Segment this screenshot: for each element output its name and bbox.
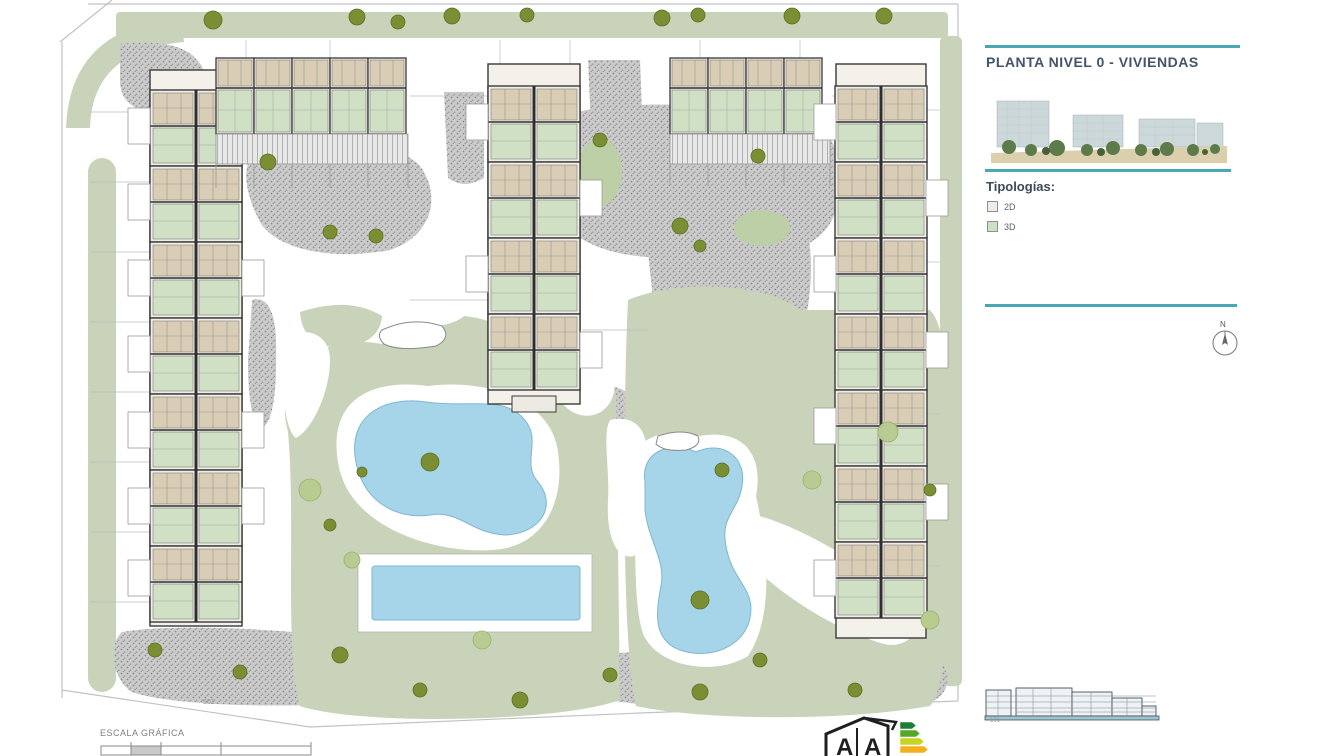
legend-item-2d: 2D <box>987 201 1016 212</box>
compass-icon: N <box>1205 315 1249 365</box>
energy-bars <box>900 722 928 753</box>
info-panel: PLANTA NIVEL 0 - VIVIENDAS <box>985 0 1245 756</box>
scale-bar <box>100 742 320 756</box>
scale-label: ESCALA GRÁFICA <box>100 728 185 738</box>
divider-middle <box>985 169 1231 172</box>
legend-label-3d: 3D <box>1004 222 1016 232</box>
sheet-note: 501 <box>203 699 215 706</box>
drawing-sheet: 501 ESCALA GRÁFICA A A <box>0 0 1319 756</box>
divider-top <box>985 45 1240 48</box>
legend-swatch-2d <box>987 201 998 212</box>
legend-item-3d: 3D <box>987 221 1016 232</box>
pool-lap <box>372 566 580 620</box>
legend-label-2d: 2D <box>1004 202 1016 212</box>
energy-letter-left: A <box>836 734 853 756</box>
legend-swatch-3d <box>987 221 998 232</box>
site-plan: 501 <box>0 0 970 756</box>
divider-bottom <box>985 304 1237 307</box>
project-render-image <box>991 93 1227 163</box>
energy-rating-logo: A A <box>812 714 932 756</box>
typologies-heading: Tipologías: <box>986 179 1055 194</box>
energy-letter-right: A <box>864 734 881 756</box>
page-title: PLANTA NIVEL 0 - VIVIENDAS <box>986 54 1199 70</box>
compass-north-label: N <box>1220 320 1226 329</box>
